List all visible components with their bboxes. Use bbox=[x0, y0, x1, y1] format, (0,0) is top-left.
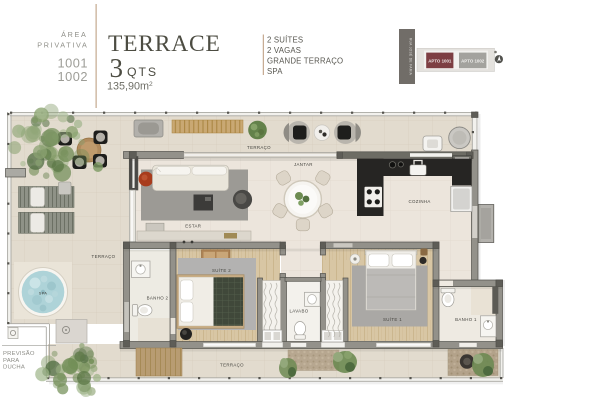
svg-text:SPA: SPA bbox=[267, 67, 283, 76]
svg-text:TERRAÇO: TERRAÇO bbox=[220, 362, 244, 367]
svg-text:DUCHA: DUCHA bbox=[3, 365, 25, 371]
svg-text:135,90m2: 135,90m2 bbox=[107, 81, 153, 93]
svg-text:3: 3 bbox=[110, 53, 124, 83]
svg-text:PREVISÃO: PREVISÃO bbox=[3, 350, 35, 357]
svg-text:QTS: QTS bbox=[127, 65, 158, 79]
svg-text:TERRACE: TERRACE bbox=[108, 31, 221, 57]
svg-text:SUÍTE 1: SUÍTE 1 bbox=[383, 317, 402, 322]
svg-text:SPA: SPA bbox=[39, 291, 48, 296]
svg-text:PRIVATIVA: PRIVATIVA bbox=[37, 41, 88, 50]
svg-text:ESTAR: ESTAR bbox=[185, 223, 201, 228]
svg-text:TERRAÇO: TERRAÇO bbox=[247, 145, 271, 150]
svg-text:RUA JOSÉ DE FARIA: RUA JOSÉ DE FARIA bbox=[409, 38, 414, 76]
svg-text:2 SUÍTES: 2 SUÍTES bbox=[267, 36, 303, 45]
svg-text:BANHO 1: BANHO 1 bbox=[455, 317, 477, 322]
svg-text:COZINHA: COZINHA bbox=[408, 199, 430, 204]
svg-text:TERRAÇO: TERRAÇO bbox=[92, 254, 116, 259]
svg-text:BANHO 2: BANHO 2 bbox=[147, 295, 169, 300]
svg-text:APTO 1002: APTO 1002 bbox=[461, 58, 485, 63]
svg-text:2 VAGAS: 2 VAGAS bbox=[267, 46, 301, 55]
svg-text:APTO 1001: APTO 1001 bbox=[428, 58, 452, 63]
svg-text:SUÍTE 2: SUÍTE 2 bbox=[212, 268, 231, 273]
svg-text:GRANDE TERRAÇO: GRANDE TERRAÇO bbox=[267, 57, 343, 66]
svg-text:PARA: PARA bbox=[3, 358, 19, 364]
svg-text:ÁREA: ÁREA bbox=[61, 30, 87, 39]
svg-text:LAVABO: LAVABO bbox=[289, 308, 308, 313]
svg-text:JANTAR: JANTAR bbox=[294, 162, 313, 167]
svg-text:1002: 1002 bbox=[58, 69, 88, 84]
